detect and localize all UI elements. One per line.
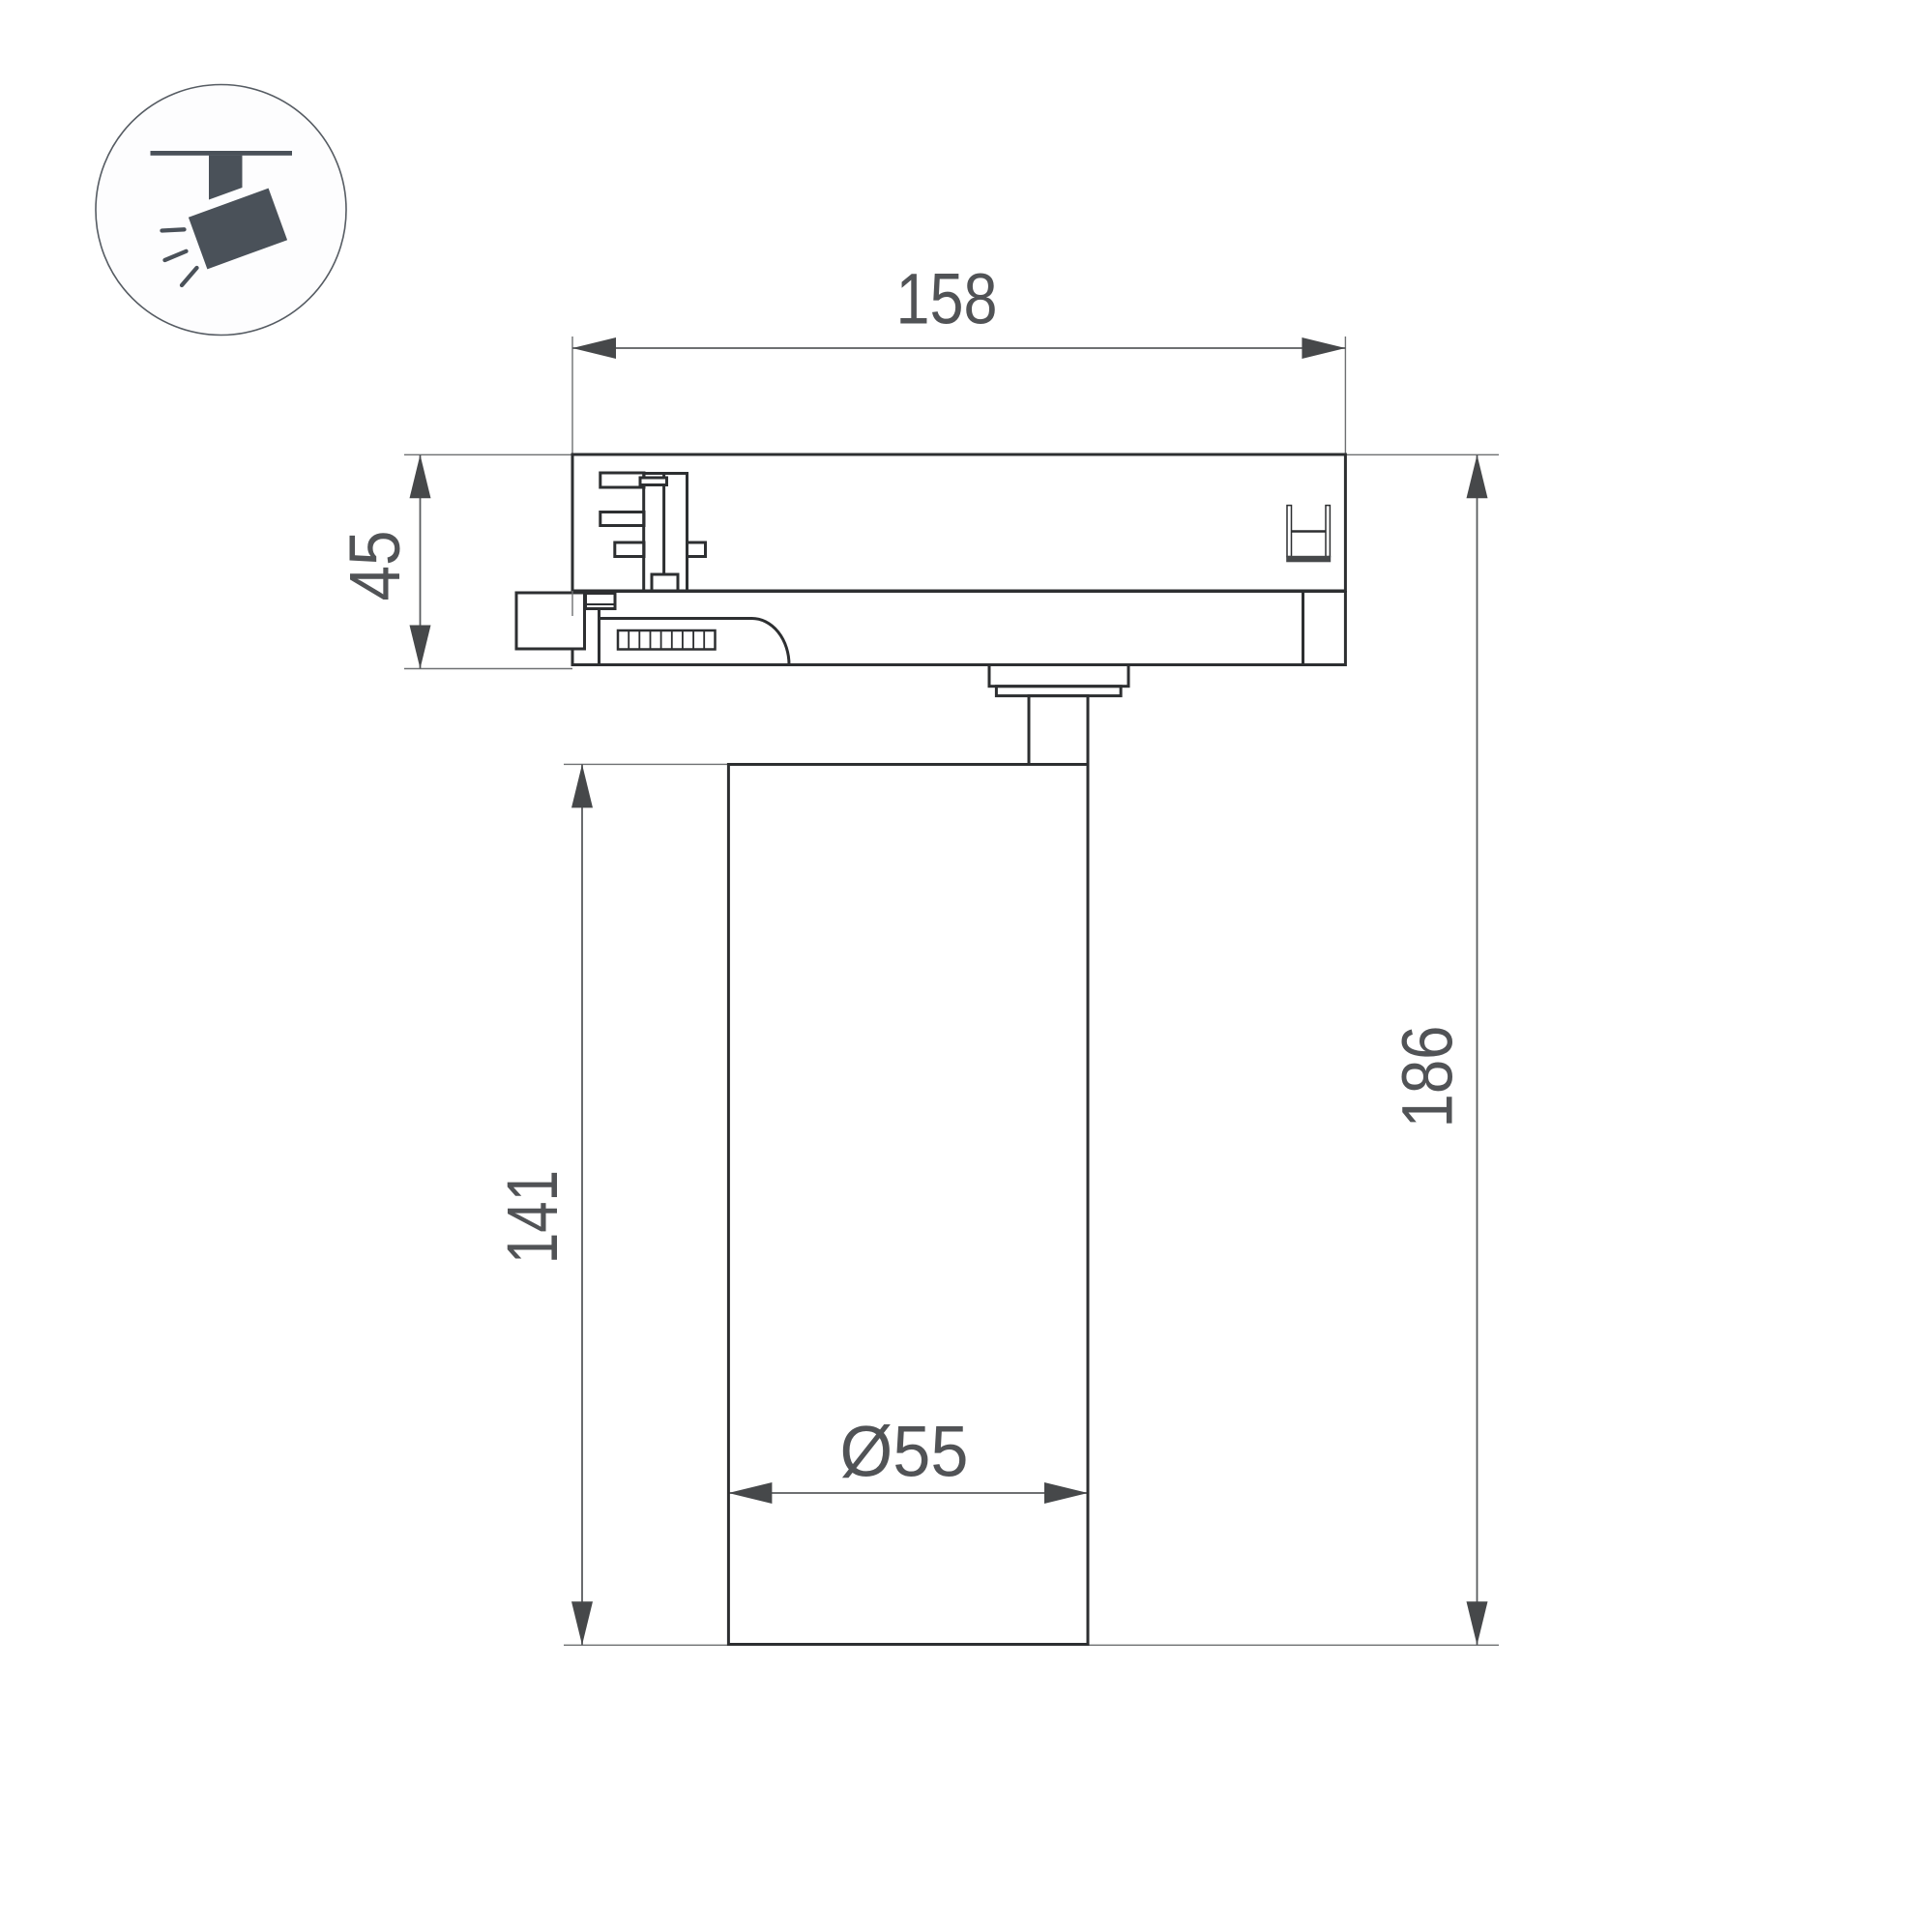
svg-text:141: 141 <box>492 1170 572 1264</box>
svg-text:186: 186 <box>1388 1026 1468 1128</box>
svg-text:Ø55: Ø55 <box>840 1412 969 1492</box>
svg-text:158: 158 <box>896 259 998 339</box>
svg-text:45: 45 <box>335 531 415 601</box>
